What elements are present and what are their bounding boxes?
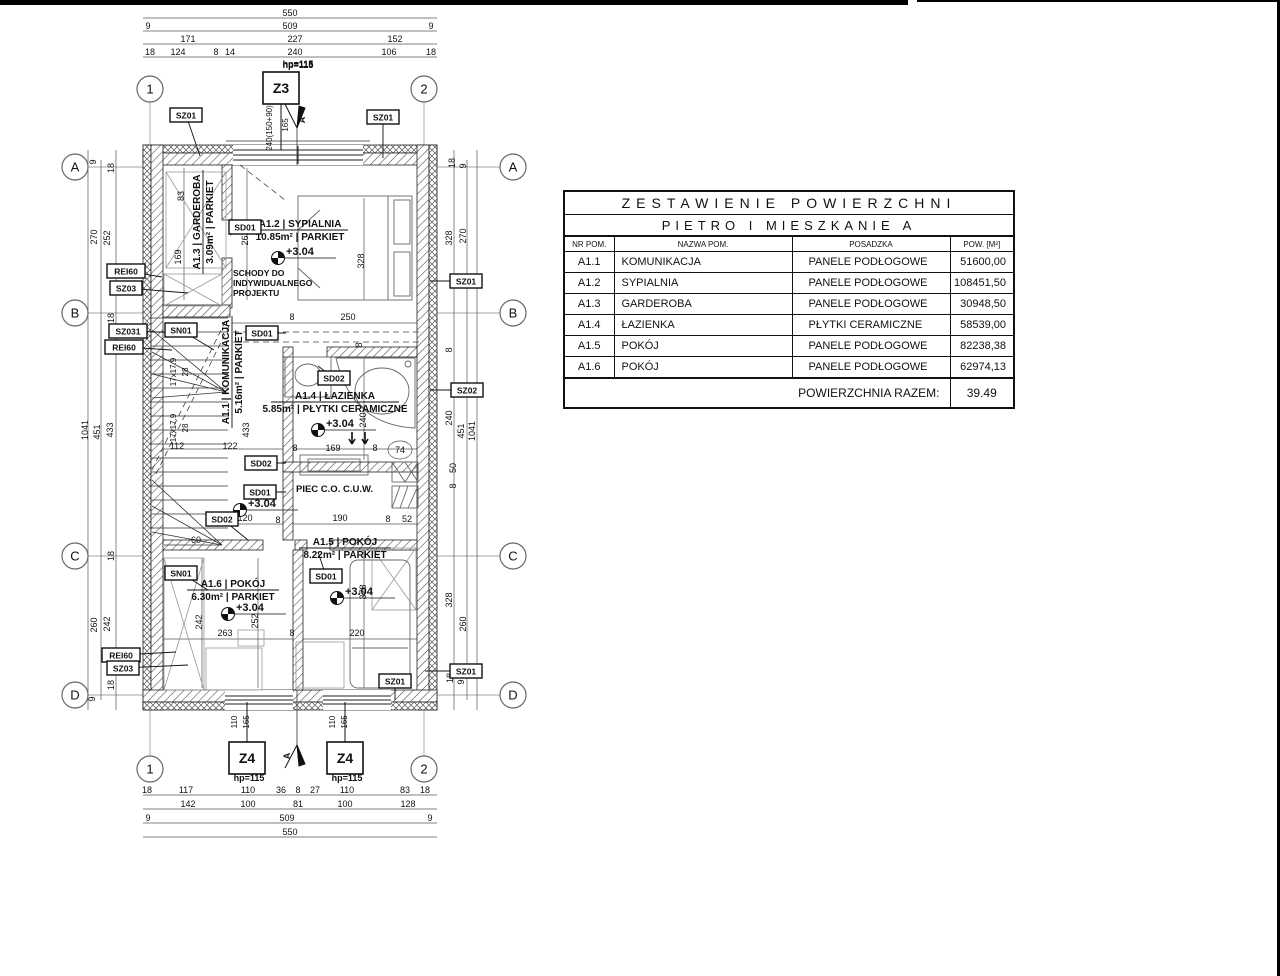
table-cell: 82238,38: [950, 336, 1014, 357]
grid-bubble-a: A: [500, 154, 526, 180]
room-number-name: A1.2 | SYPIALNIA: [259, 219, 342, 230]
dim-label: 9: [456, 679, 466, 684]
dim-label: 14: [225, 47, 235, 57]
table-cell: 51600,00: [950, 252, 1014, 273]
table-cell: PŁYTKI CERAMICZNE: [792, 315, 950, 336]
table-row: A1.3GARDEROBAPANELE PODŁOGOWE30948,50: [564, 294, 1014, 315]
dim-label: 83: [176, 191, 186, 201]
dim-label: 8: [289, 312, 294, 322]
dim-label: 451: [92, 424, 102, 439]
dim-label: 240: [287, 47, 302, 57]
table-cell: A1.4: [564, 315, 614, 336]
dim-label: 17x17.9: [169, 357, 178, 386]
room-area-floor: 5.85m² | PŁYTKI CERAMICZNE: [262, 404, 407, 415]
tag-label: REI60: [109, 651, 133, 661]
dim-label: 36: [276, 785, 286, 795]
tag-sd01: SD01: [244, 485, 286, 499]
dim-label: 1041: [467, 421, 477, 441]
grid-bubble-b: B: [500, 300, 526, 326]
schody-line3: PROJEKTU: [233, 288, 279, 298]
table-cell: A1.3: [564, 294, 614, 315]
room-label-a1.6: A1.6 | POKÓJ6.30m² | PARKIET: [187, 577, 279, 603]
dim-label: 124: [170, 47, 185, 57]
dim-label: 9: [88, 159, 98, 164]
dim-label: 18: [106, 163, 116, 173]
dim-label: 260: [89, 617, 99, 632]
grid-bubble-label: 1: [146, 82, 153, 97]
dim-label: 110: [328, 715, 337, 728]
dim-label: 550: [282, 827, 297, 837]
dim-label: 9: [458, 163, 468, 168]
dim-label: 110: [241, 785, 255, 795]
dim-label: 128: [400, 799, 415, 809]
window-tag-label: Z3: [273, 80, 290, 96]
table-cell: PANELE PODŁOGOWE: [792, 252, 950, 273]
dim-label: 9: [428, 21, 433, 31]
dim-label: 122: [222, 441, 237, 451]
grid-bubble-c: C: [500, 543, 526, 569]
dim-label: 117: [179, 785, 193, 795]
dim-label: 18: [106, 313, 116, 323]
tag-label: SD02: [250, 459, 272, 469]
table-cell: 30948,50: [950, 294, 1014, 315]
dim-label: 240: [444, 410, 454, 425]
dim-label: 242: [102, 616, 112, 631]
room-number-name: A1.6 | POKÓJ: [201, 577, 266, 590]
grid-bubble-label: C: [508, 549, 517, 564]
tag-label: REI60: [114, 267, 138, 277]
tag-label: REI60: [112, 343, 136, 353]
dim-label: 8: [275, 515, 280, 525]
dim-label: 100: [240, 799, 255, 809]
dim-label: 328: [356, 253, 366, 268]
window-tag-z4: Z4hp=115: [229, 702, 265, 783]
dim-label: 250: [340, 312, 355, 322]
dim-label: 142: [180, 799, 195, 809]
table-row: A1.4ŁAZIENKAPŁYTKI CERAMICZNE58539,00: [564, 315, 1014, 336]
piec-label: PIEC C.O. C.U.W.: [296, 484, 373, 495]
dim-label: 433: [105, 422, 115, 437]
dim-label: 18: [447, 158, 457, 168]
table-cell: A1.2: [564, 273, 614, 294]
table-cell: 108451,50: [950, 273, 1014, 294]
grid-bubble-label: A: [509, 160, 518, 175]
room-label-a1.3: A1.3 | GARDEROBA3.09m² | PARKIET: [192, 170, 216, 274]
dim-label: 18: [145, 47, 155, 57]
room-label-a1.5: A1.5 | POKÓJ8.22m² | PARKIET: [299, 535, 391, 561]
tag-label: SD01: [251, 329, 273, 339]
tag-label: SD01: [315, 572, 337, 582]
dim-label: 451: [456, 423, 466, 438]
dim-label: 9: [145, 813, 150, 823]
dim-label: 263: [217, 628, 232, 638]
room-number-name: A1.4 | ŁAZIENKA: [295, 391, 375, 402]
grid-bubble-label: A: [71, 160, 80, 175]
dim-label: 328: [444, 230, 454, 245]
grid-bubble-label: B: [71, 306, 80, 321]
dim-label: 328: [444, 592, 454, 607]
table-footer: POWIERZCHNIA RAZEM: 39.49: [564, 378, 1014, 408]
dim-label: 8: [444, 347, 454, 352]
column-header: NAZWA POM.: [614, 236, 792, 252]
table-column-headers: NR POM.NAZWA POM.POSADZKAPOW. [M²]: [564, 236, 1014, 252]
level-value: +3.04: [326, 418, 355, 430]
dim-label: 18: [142, 785, 152, 795]
table-title: ZESTAWIENIE POWIERZCHNI: [564, 191, 1014, 215]
dim-label: 8: [372, 443, 377, 453]
dim-label: 190: [332, 513, 347, 523]
tag-rei60: REI60: [102, 648, 176, 662]
dim-label: 18: [426, 47, 436, 57]
grid-bubble-1: 1: [137, 76, 163, 102]
dim-label: 9: [87, 696, 97, 701]
dim-label: 171: [180, 34, 195, 44]
table-cell: A1.1: [564, 252, 614, 273]
level-marker: +3.04: [272, 246, 337, 265]
dim-label: 8: [354, 342, 364, 347]
table-cell: PANELE PODŁOGOWE: [792, 294, 950, 315]
table-subtitle: PIETRO I MIESZKANIE A: [564, 215, 1014, 237]
dim-label: 165: [281, 118, 290, 132]
dim-label: 270: [89, 229, 99, 244]
level-value: +3.04: [248, 498, 277, 510]
tag-label: SD02: [211, 515, 233, 525]
room-number-name: A1.5 | POKÓJ: [313, 535, 378, 548]
total-label: POWIERZCHNIA RAZEM:: [564, 378, 950, 408]
dim-label: 8: [385, 514, 390, 524]
tag-label: SD01: [234, 223, 256, 233]
table-cell: ŁAZIENKA: [614, 315, 792, 336]
tag-label: SZ01: [176, 111, 197, 121]
dim-label: 169: [173, 249, 183, 264]
tag-sd01: SD01: [246, 326, 286, 340]
room-area-floor: 10.85m² | PARKIET: [256, 232, 345, 243]
grid-bubble-1: 1: [137, 756, 163, 782]
window-sill-height: hp=115: [332, 773, 363, 783]
dim-label: 27: [310, 785, 320, 795]
table-row: A1.6POKÓJPANELE PODŁOGOWE62974,13: [564, 357, 1014, 379]
window-sill-height: hp=115: [234, 773, 265, 783]
dim-label: 100: [337, 799, 352, 809]
dim-label: 18: [106, 551, 116, 561]
tag-sn01: SN01: [165, 566, 208, 590]
dim-label: 81: [293, 799, 303, 809]
window-tag-label: Z4: [239, 750, 256, 766]
dim-label: 169: [325, 443, 340, 453]
table-cell: 58539,00: [950, 315, 1014, 336]
dim-label: 260: [458, 616, 468, 631]
dim-label: 8: [292, 443, 297, 453]
tag-sd01: SD01: [229, 220, 261, 235]
room-number-name: A1.1 | KOMUNIKACJA: [221, 320, 232, 424]
tag-sz01: SZ01: [430, 274, 482, 288]
dim-label: 50: [448, 463, 458, 473]
area-summary-table: ZESTAWIENIE POWIERZCHNI PIETRO I MIESZKA…: [563, 190, 1015, 409]
table-cell: POKÓJ: [614, 336, 792, 357]
schody-line2: INDYWIDUALNEGO: [233, 278, 313, 288]
tag-label: SZ031: [115, 327, 140, 337]
dim-label: 110: [230, 715, 239, 728]
room-area-floor: 5.16m² | PARKIET: [234, 330, 245, 413]
dim-label: 9: [145, 21, 150, 31]
dim-label: 106: [381, 47, 396, 57]
tag-label: SZ03: [113, 664, 134, 674]
grid-bubble-label: D: [70, 688, 79, 703]
grid-bubble-d: D: [500, 682, 526, 708]
table-cell: KOMUNIKACJA: [614, 252, 792, 273]
table-row: A1.2SYPIALNIAPANELE PODŁOGOWE108451,50: [564, 273, 1014, 294]
tag-sz02: SZ02: [430, 383, 483, 397]
grid-bubble-c: C: [62, 543, 88, 569]
tag-label: SZ01: [456, 667, 477, 677]
room-area-floor: 3.09m² | PARKIET: [205, 180, 216, 263]
dim-label: 152: [387, 34, 402, 44]
dim-label: 8: [213, 47, 218, 57]
dim-label: 509: [282, 21, 297, 31]
grid-bubble-b: B: [62, 300, 88, 326]
dim-label: 9: [427, 813, 432, 823]
table-row: A1.1KOMUNIKACJAPANELE PODŁOGOWE51600,00: [564, 252, 1014, 273]
grid-bubble-label: 2: [420, 82, 427, 97]
window-tag-z4: Z4hp=115: [327, 702, 363, 783]
dim-label: 17x17.9: [169, 413, 178, 442]
tag-label: SD01: [249, 488, 271, 498]
tag-label: SZ02: [457, 386, 478, 396]
column-header: POSADZKA: [792, 236, 950, 252]
table-cell: PANELE PODŁOGOWE: [792, 357, 950, 379]
level-value: +3.04: [236, 602, 265, 614]
tag-label: SZ01: [373, 113, 394, 123]
table-cell: A1.6: [564, 357, 614, 379]
window-tag-label: Z4: [337, 750, 354, 766]
table-cell: 62974,13: [950, 357, 1014, 379]
dim-label: 28: [181, 423, 190, 432]
schody-line1: SCHODY DO: [233, 268, 285, 278]
dim-label: 433: [241, 422, 251, 437]
dim-label: 8: [448, 483, 458, 488]
table-cell: GARDEROBA: [614, 294, 792, 315]
floor-plan: A A SCHODY DO INDYWIDUALNEGO PROJEKTU PI…: [0, 0, 560, 976]
dim-label: 1041: [80, 420, 90, 440]
dim-label: 240(150+90): [265, 105, 274, 151]
room-number-name: A1.3 | GARDEROBA: [192, 174, 203, 269]
grid-bubble-label: B: [509, 306, 518, 321]
table-cell: A1.5: [564, 336, 614, 357]
tag-sd02: SD02: [245, 456, 286, 470]
room-labels: A1.2 | SYPIALNIA10.85m² | PARKIETA1.3 | …: [187, 170, 408, 603]
tag-label: SN01: [170, 569, 192, 579]
room-label-a1.2: A1.2 | SYPIALNIA10.85m² | PARKIET: [252, 219, 348, 243]
grid-bubble-label: C: [70, 549, 79, 564]
column-header: NR POM.: [564, 236, 614, 252]
dim-label: 252: [102, 230, 112, 245]
tag-label: SD02: [323, 374, 345, 384]
dim-label: 8: [295, 785, 300, 795]
dim-label: 270: [458, 228, 468, 243]
dim-label: 550: [282, 8, 297, 18]
grid-bubble-2: 2: [411, 76, 437, 102]
grid-bubble-d: D: [62, 682, 88, 708]
grid-bubble-label: 2: [420, 762, 427, 777]
table-cell: PANELE PODŁOGOWE: [792, 273, 950, 294]
window-sill-height: hp=115: [283, 60, 314, 70]
dim-label: 252: [250, 613, 260, 628]
dim-label: 83: [400, 785, 410, 795]
table-body: A1.1KOMUNIKACJAPANELE PODŁOGOWE51600,00A…: [564, 252, 1014, 379]
section-letter-bottom: A: [282, 752, 292, 759]
grid-bubble-a: A: [62, 154, 88, 180]
grid-bubble-label: D: [508, 688, 517, 703]
dim-label: 18: [106, 680, 116, 690]
dim-label: 112: [170, 441, 184, 451]
table-cell: SYPIALNIA: [614, 273, 792, 294]
dim-label: 509: [279, 813, 294, 823]
total-value: 39.49: [950, 378, 1014, 408]
table-row: A1.5POKÓJPANELE PODŁOGOWE82238,38: [564, 336, 1014, 357]
dim-label: 227: [287, 34, 302, 44]
tag-sd02: SD02: [318, 366, 350, 385]
dim-label: 242: [194, 614, 204, 629]
level-marker: +3.04: [331, 586, 396, 605]
dim-label: 110: [340, 785, 354, 795]
dim-label: 74: [395, 445, 405, 455]
sheet-top-border-right: [917, 0, 1280, 2]
tag-label: SZ03: [116, 284, 137, 294]
level-value: +3.04: [286, 246, 315, 258]
table-cell: PANELE PODŁOGOWE: [792, 336, 950, 357]
dim-label: 60: [191, 535, 201, 545]
drawing-sheet: { "sheet": {"bar1_w": 908, "bar2_x": 917…: [0, 0, 1280, 976]
dim-label: 28: [181, 367, 190, 376]
grid-bubble-label: 1: [146, 762, 153, 777]
dim-label: 52: [402, 514, 412, 524]
dashed-lines: [233, 165, 420, 342]
dim-label: 18: [420, 785, 430, 795]
section-letter-top: A: [297, 116, 307, 123]
room-area-floor: 8.22m² | PARKIET: [303, 550, 386, 561]
grid-bubble-2: 2: [411, 756, 437, 782]
tag-label: SN01: [170, 326, 192, 336]
table-cell: POKÓJ: [614, 357, 792, 379]
level-value: +3.04: [345, 586, 374, 598]
dim-label: 220: [349, 628, 364, 638]
tag-label: SZ01: [385, 677, 406, 687]
room-label-a1.1: A1.1 | KOMUNIKACJA5.16m² | PARKIET: [221, 316, 245, 428]
column-header: POW. [M²]: [950, 236, 1014, 252]
tag-label: SZ01: [456, 277, 477, 287]
dim-label: 8: [289, 628, 294, 638]
